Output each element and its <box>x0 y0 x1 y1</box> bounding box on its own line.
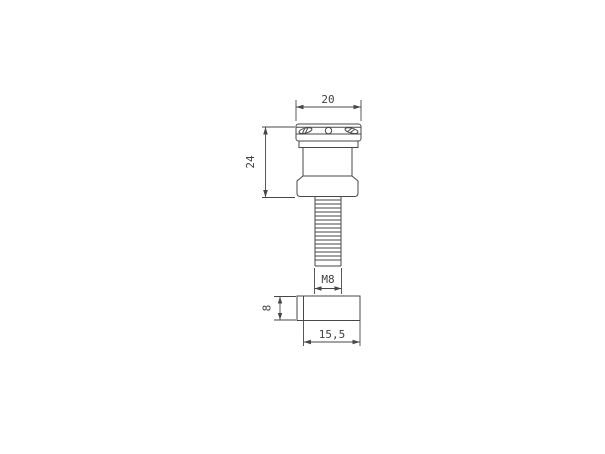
dim-15-5-arrow-left <box>304 340 312 344</box>
dim-20-arrow-right <box>354 105 362 110</box>
dim-20-arrow-left <box>296 105 304 110</box>
dim-m8-arrow-right <box>335 286 342 290</box>
head-center-hole <box>325 127 331 133</box>
head-slot-left <box>298 127 312 135</box>
spacer-outline <box>297 296 360 321</box>
dim-m8-arrow-left <box>315 286 322 290</box>
spool-body <box>297 141 358 197</box>
dim-8-arrow-bottom <box>278 313 282 320</box>
spool-bolt-drawing: 20 <box>0 0 605 454</box>
dimension-20: 20 <box>296 93 361 121</box>
thread-crest-lines <box>315 200 341 260</box>
dim-20-label: 20 <box>321 93 334 106</box>
head-slot-right <box>344 127 358 135</box>
head-slot-left-outline <box>298 127 312 135</box>
head-slot-right-outline <box>344 127 358 135</box>
dim-8-arrow-top <box>278 297 282 304</box>
dim-15-5-arrow-right <box>353 340 361 344</box>
spool-neck <box>299 141 358 148</box>
dim-24-arrow-bottom <box>263 190 268 198</box>
dim-m8-label: M8 <box>321 273 334 286</box>
spacer <box>297 296 360 321</box>
dimension-15-5: 15,5 <box>304 321 361 346</box>
dim-8-label: 8 <box>261 305 274 312</box>
technical-drawing-page: 20 <box>0 0 605 454</box>
dim-24-arrow-top <box>263 127 268 135</box>
thread-shaft <box>315 197 341 267</box>
spool-head <box>296 124 361 141</box>
spool-bottom-flange <box>297 176 358 197</box>
dim-24-label: 24 <box>244 155 257 169</box>
spool-waist <box>303 148 352 177</box>
dimension-24: 24 <box>244 127 295 198</box>
dimension-8: 8 <box>261 297 297 321</box>
dim-15-5-label: 15,5 <box>319 328 346 341</box>
dimension-m8: M8 <box>315 268 342 294</box>
